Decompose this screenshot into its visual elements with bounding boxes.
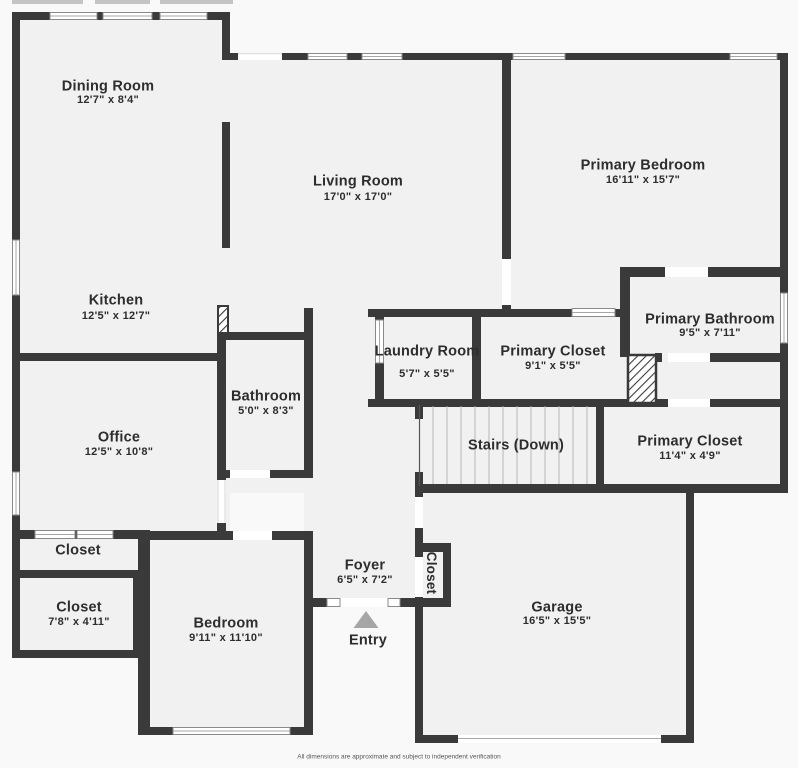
disclaimer-text: All dimensions are approximate and subje… [297, 754, 500, 761]
room-label-closet-lower: Closet [56, 600, 102, 615]
window-icon [103, 13, 152, 20]
window-icon [160, 13, 207, 20]
room-label-laundry: Laundry Room [371, 344, 483, 359]
door-jamb-icon [388, 599, 400, 607]
room-label-primary-closet-upper: Primary Closet [500, 344, 605, 359]
room-label-garage: Garage [531, 600, 582, 615]
window-icon [13, 472, 20, 515]
porch-edge-strip [12, 0, 233, 4]
room-dims-bathroom: 5'0" x 8'3" [238, 406, 294, 418]
garage-door-icon [458, 735, 661, 743]
room-dims-laundry: 5'7" x 5'5" [399, 369, 455, 381]
window-icon [362, 54, 402, 60]
room-label-bedroom: Bedroom [193, 616, 258, 631]
room-label-living: Living Room [313, 174, 403, 189]
window-icon [308, 54, 347, 60]
room-dims-primary-closet-upper: 9'1" x 5'5" [525, 361, 581, 373]
window-icon [173, 728, 290, 735]
room-dims-primary-closet-lower: 11'4" x 4'9" [659, 451, 720, 463]
room-dims-garage: 16'5" x 15'5" [523, 616, 592, 628]
room-label-primary-closet-lower: Primary Closet [637, 434, 742, 449]
room-label-kitchen: Kitchen [89, 293, 144, 308]
room-dims-bedroom: 9'11" x 11'10" [189, 633, 263, 645]
floor-plan-drawing [0, 0, 798, 768]
floor-plan: Dining Room 12'7" x 8'4" Living Room 17'… [0, 0, 798, 768]
room-dims-kitchen: 12'5" x 12'7" [82, 311, 151, 323]
door-jamb-icon [327, 599, 340, 607]
room-label-office: Office [98, 430, 140, 445]
room-label-stairs: Stairs (Down) [468, 438, 564, 453]
room-dims-foyer: 6'5" x 7'2" [337, 575, 393, 587]
closet-door-icon [77, 531, 113, 539]
room-dims-office: 12'5" x 10'8" [85, 447, 154, 459]
room-label-closet-hall: Closet [55, 543, 101, 558]
closet-door-icon [572, 309, 615, 317]
closet-door-icon [35, 531, 75, 539]
window-icon [50, 13, 97, 20]
entry-direction-icon [354, 611, 379, 628]
entry-label: Entry [349, 633, 387, 648]
room-label-dining: Dining Room [62, 79, 154, 94]
room-label-bathroom: Bathroom [231, 389, 301, 404]
room-dims-primary-bathroom: 9'5" x 7'11" [679, 328, 740, 340]
room-label-primary-bathroom: Primary Bathroom [645, 312, 775, 327]
window-icon [730, 54, 777, 60]
room-label-foyer: Foyer [345, 558, 386, 573]
window-icon [513, 54, 565, 60]
room-dims-dining: 12'7" x 8'4" [77, 95, 139, 107]
room-dims-closet-lower: 7'8" x 4'11" [48, 617, 109, 629]
window-icon [13, 240, 20, 295]
room-label-closet-foyer: Closet [424, 552, 438, 594]
window-icon [781, 293, 788, 343]
room-label-primary-bedroom: Primary Bedroom [581, 158, 706, 173]
room-dims-primary-bedroom: 16'11" x 15'7" [606, 175, 680, 187]
room-dims-living: 17'0" x 17'0" [324, 192, 393, 204]
